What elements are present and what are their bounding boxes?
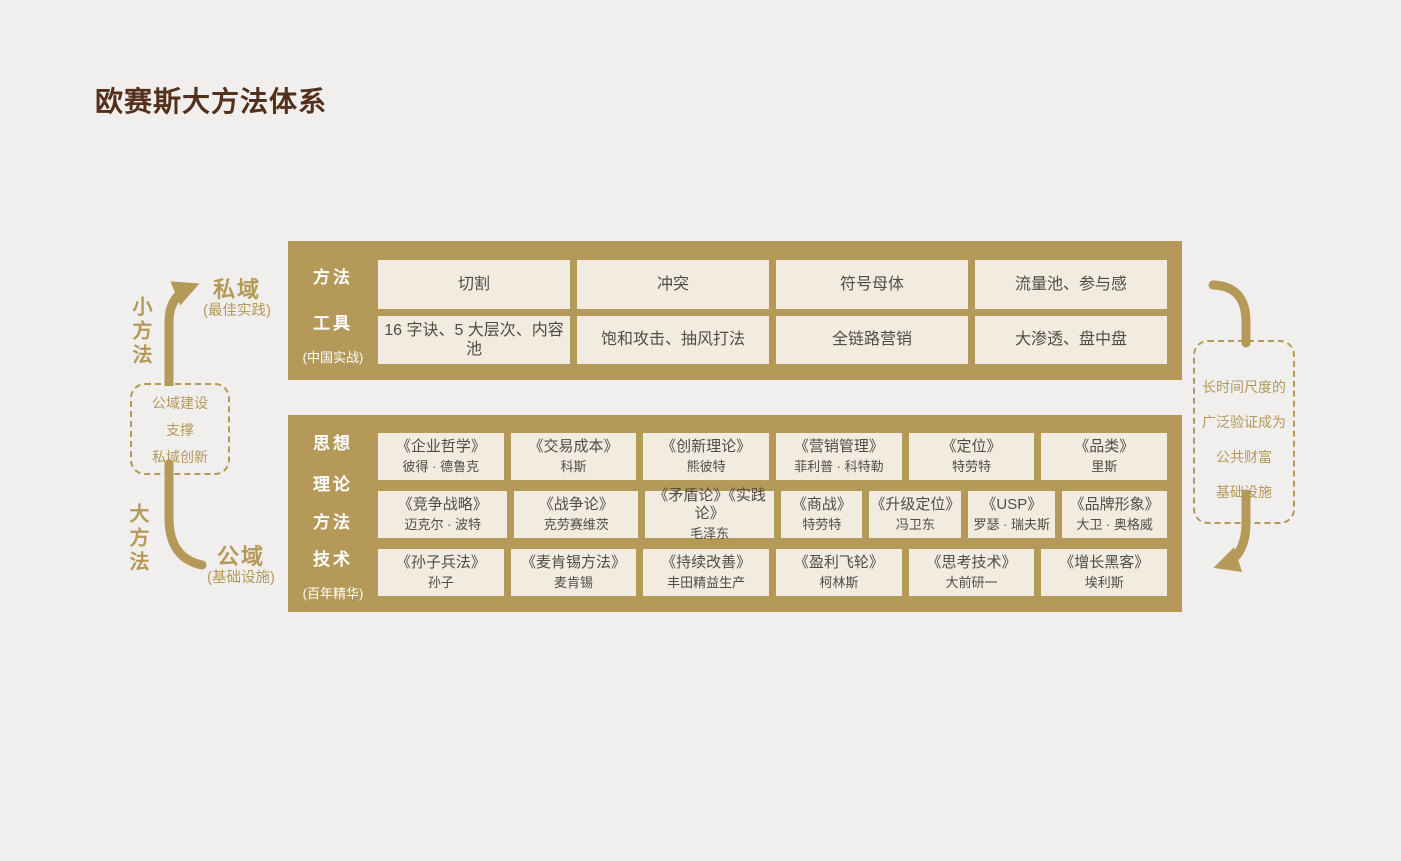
- method-cell: 流量池、参与感: [975, 260, 1167, 309]
- tool-cell: 全链路营销: [776, 316, 968, 364]
- book-author: 大卫 · 奥格威: [1076, 517, 1153, 533]
- book-author: 罗瑟 · 瑞夫斯: [974, 517, 1051, 533]
- bottom-block-label-method: 方法: [288, 508, 378, 533]
- validation-box-line: 基础设施: [1195, 475, 1293, 510]
- book-author: 菲利普 · 科特勒: [794, 459, 884, 475]
- book-cell: 《战争论》 克劳赛维茨: [514, 491, 638, 538]
- top-block-footnote: (中国实战): [288, 347, 378, 366]
- book-author: 大前研一: [946, 575, 998, 591]
- book-cell: 《矛盾论》《实践论》 毛泽东: [645, 491, 774, 538]
- book-cell: 《商战》 特劳特: [781, 491, 862, 538]
- big-method-label: 大方法: [123, 503, 152, 575]
- book-cell: 《定位》 特劳特: [909, 433, 1035, 480]
- classics-block: 思想 理论 方法 技术 (百年精华) 《企业哲学》 彼得 · 德鲁克 《交易成本…: [288, 415, 1182, 612]
- tool-cell: 饱和攻击、抽风打法: [577, 316, 769, 364]
- book-author: 熊彼特: [687, 459, 726, 475]
- book-title: 《矛盾论》《实践论》: [645, 487, 774, 523]
- book-cell: 《持续改善》 丰田精益生产: [643, 549, 769, 596]
- top-block-label-method: 方法: [288, 263, 378, 288]
- book-title: 《定位》: [942, 438, 1002, 456]
- book-title: 《升级定位》: [870, 496, 960, 514]
- book-author: 麦肯锡: [554, 575, 593, 591]
- classics-row-3: 《孙子兵法》 孙子 《麦肯锡方法》 麦肯锡 《持续改善》 丰田精益生产 《盈利飞…: [378, 549, 1167, 596]
- book-cell: 《竞争战略》 迈克尔 · 波特: [378, 491, 507, 538]
- page-title: 欧赛斯大方法体系: [95, 80, 327, 120]
- method-cell: 切割: [378, 260, 570, 309]
- diagram-canvas: 欧赛斯大方法体系 小方法 大方法 私域 (最佳实践) 公域 (基础设施) 公域建…: [0, 0, 1401, 861]
- classics-row-2: 《竞争战略》 迈克尔 · 波特 《战争论》 克劳赛维茨 《矛盾论》《实践论》 毛…: [378, 491, 1167, 538]
- book-author: 彼得 · 德鲁克: [403, 459, 480, 475]
- book-author: 克劳赛维茨: [544, 517, 609, 533]
- support-box-line: 支撑: [132, 417, 228, 444]
- tool-cell: 大渗透、盘中盘: [975, 316, 1167, 364]
- book-title: 《USP》: [981, 496, 1042, 514]
- book-title: 《品类》: [1074, 438, 1134, 456]
- bottom-block-label-theory: 理论: [288, 470, 378, 495]
- top-block-label-tool: 工具: [288, 309, 378, 334]
- book-title: 《盈利飞轮》: [794, 554, 884, 572]
- book-title: 《企业哲学》: [396, 438, 486, 456]
- book-author: 迈克尔 · 波特: [404, 517, 481, 533]
- book-author: 毛泽东: [690, 526, 729, 542]
- book-author: 冯卫东: [896, 517, 935, 533]
- book-title: 《战争论》: [539, 496, 614, 514]
- support-box: 公域建设 支撑 私域创新: [130, 383, 230, 475]
- book-title: 《麦肯锡方法》: [521, 554, 626, 572]
- book-cell: 《思考技术》 大前研一: [909, 549, 1035, 596]
- book-cell: 《营销管理》 菲利普 · 科特勒: [776, 433, 902, 480]
- bottom-block-label-technique: 技术: [288, 545, 378, 570]
- methods-row: 切割 冲突 符号母体 流量池、参与感: [378, 260, 1167, 309]
- book-cell: 《USP》 罗瑟 · 瑞夫斯: [968, 491, 1055, 538]
- methods-tools-block: 方法 工具 (中国实战) 切割 冲突 符号母体 流量池、参与感 16 字诀、5 …: [288, 241, 1182, 380]
- book-title: 《孙子兵法》: [396, 554, 486, 572]
- small-method-label: 小方法: [126, 296, 155, 368]
- book-title: 《商战》: [792, 496, 852, 514]
- tool-cell: 16 字诀、5 大层次、内容池: [378, 316, 570, 364]
- book-cell: 《盈利飞轮》 柯林斯: [776, 549, 902, 596]
- validation-in-curve: [1213, 285, 1246, 343]
- book-cell: 《品牌形象》 大卫 · 奥格威: [1062, 491, 1167, 538]
- book-author: 柯林斯: [819, 575, 858, 591]
- book-cell: 《麦肯锡方法》 麦肯锡: [511, 549, 637, 596]
- book-title: 《营销管理》: [794, 438, 884, 456]
- book-title: 《思考技术》: [927, 554, 1017, 572]
- book-author: 特劳特: [802, 517, 841, 533]
- book-author: 科斯: [561, 459, 587, 475]
- book-title: 《竞争战略》: [398, 496, 488, 514]
- book-author: 特劳特: [952, 459, 991, 475]
- method-cell: 符号母体: [776, 260, 968, 309]
- book-cell: 《增长黑客》 埃利斯: [1041, 549, 1167, 596]
- private-domain-sub: (最佳实践): [167, 299, 307, 320]
- book-author: 埃利斯: [1085, 575, 1124, 591]
- bottom-block-label-thought: 思想: [288, 429, 378, 454]
- tools-row: 16 字诀、5 大层次、内容池 饱和攻击、抽风打法 全链路营销 大渗透、盘中盘: [378, 316, 1167, 364]
- book-title: 《交易成本》: [529, 438, 619, 456]
- validation-box-line: 长时间尺度的: [1195, 370, 1293, 405]
- book-cell: 《交易成本》 科斯: [511, 433, 637, 480]
- book-title: 《创新理论》: [661, 438, 751, 456]
- book-author: 丰田精益生产: [667, 575, 745, 591]
- validation-box-line: 公共财富: [1195, 440, 1293, 475]
- bottom-block-footnote: (百年精华): [288, 583, 378, 602]
- book-cell: 《企业哲学》 彼得 · 德鲁克: [378, 433, 504, 480]
- classics-row-1: 《企业哲学》 彼得 · 德鲁克 《交易成本》 科斯 《创新理论》 熊彼特 《营销…: [378, 433, 1167, 480]
- book-title: 《品牌形象》: [1070, 496, 1160, 514]
- book-cell: 《品类》 里斯: [1041, 433, 1167, 480]
- book-author: 里斯: [1091, 459, 1117, 475]
- book-author: 孙子: [428, 575, 454, 591]
- support-box-line: 私域创新: [132, 444, 228, 471]
- book-title: 《持续改善》: [661, 554, 751, 572]
- book-cell: 《创新理论》 熊彼特: [643, 433, 769, 480]
- book-cell: 《升级定位》 冯卫东: [869, 491, 961, 538]
- book-cell: 《孙子兵法》 孙子: [378, 549, 504, 596]
- book-title: 《增长黑客》: [1059, 554, 1149, 572]
- support-box-line: 公域建设: [132, 390, 228, 417]
- validation-box: 长时间尺度的 广泛验证成为 公共财富 基础设施: [1193, 340, 1295, 524]
- method-cell: 冲突: [577, 260, 769, 309]
- validation-box-line: 广泛验证成为: [1195, 405, 1293, 440]
